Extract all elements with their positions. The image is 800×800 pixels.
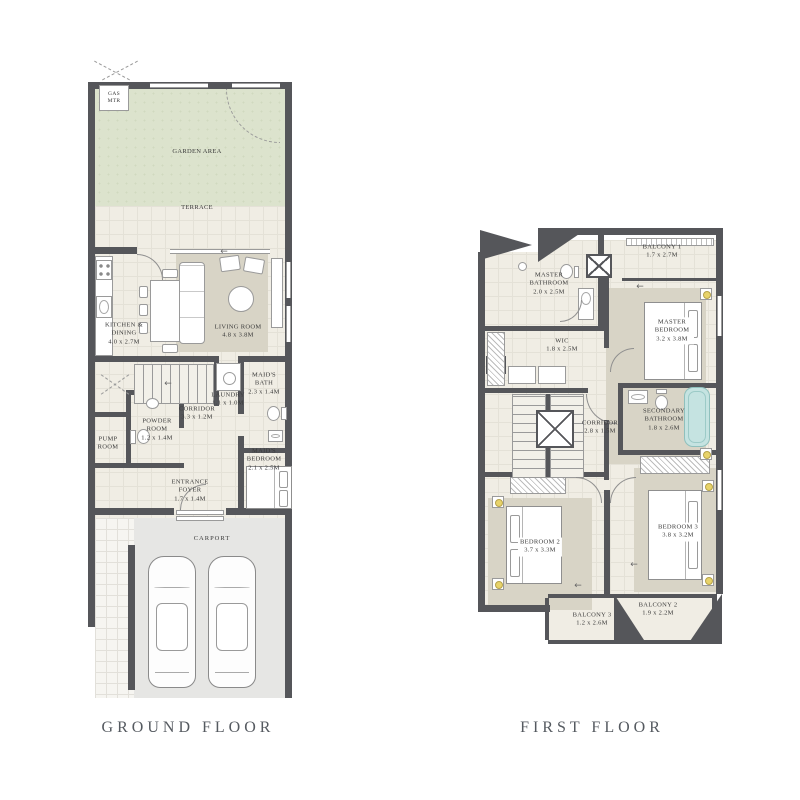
front-gate-swing-2 xyxy=(102,61,138,81)
powder-sink-icon xyxy=(146,398,159,409)
bedroom2-wardrobe xyxy=(510,477,566,494)
wall-wic-bottom xyxy=(484,388,588,393)
wic-shelf xyxy=(508,366,536,384)
room-dims: 1.9 x 2.2M xyxy=(639,610,678,618)
room-name: PUMP ROOM xyxy=(95,436,121,453)
stair-direction-arrow-icon: ← xyxy=(164,379,172,389)
kitchen-sink-icon xyxy=(96,296,112,318)
ground-floor-title: GROUND FLOOR xyxy=(102,719,275,737)
room-dims: 1.2 x 1.4M xyxy=(139,434,175,442)
wall-left xyxy=(88,82,95,627)
stove-icon xyxy=(96,260,112,280)
room-name: LIVING ROOM xyxy=(215,324,262,332)
room-label-kitchen: KITCHEN & DINING 4.0 x 2.7M xyxy=(103,321,145,346)
room-name: KITCHEN & DINING xyxy=(103,321,145,338)
room-label-secondary-bath: SECONDARY BATHROOM 1.8 x 2.6M xyxy=(639,407,689,432)
media-unit xyxy=(271,258,283,328)
balcony2-arrow-icon: ← xyxy=(630,560,638,570)
room-name: SECONDARY BATHROOM xyxy=(639,407,689,424)
nightstand-lamp-icon xyxy=(700,448,712,460)
room-dims: 3.2 x 3.8M xyxy=(652,335,692,343)
room-dims: 3.8 x 3.2M xyxy=(658,532,698,540)
right-window xyxy=(286,262,291,298)
car xyxy=(208,556,256,688)
stairs-ground xyxy=(134,364,214,404)
room-dims: 4.0 x 2.7M xyxy=(103,338,145,346)
room-dims: 2.8 x 1.5M xyxy=(582,428,618,436)
wall-right-first xyxy=(716,228,723,594)
room-dims: 2.3 x 1.4M xyxy=(244,388,284,396)
top-window-2 xyxy=(232,83,280,88)
nightstand-lamp-icon xyxy=(492,496,504,508)
room-name: CORRIDOR xyxy=(179,406,215,414)
stair-void-box xyxy=(536,410,574,448)
room-label-laundry: LAUNDRY 1.1 x 1.0M xyxy=(211,392,245,409)
room-name: TERRACE xyxy=(181,204,213,212)
nightstand-lamp-icon xyxy=(702,574,714,586)
room-dims: 1.1 x 1.0M xyxy=(211,400,245,408)
wall-right xyxy=(285,82,292,698)
first-floor-title: FIRST FLOOR xyxy=(520,719,664,737)
balcony3-arrow-icon: ← xyxy=(574,581,582,591)
room-label-foyer: ENTRANCE FOYER 1.7 x 1.4M xyxy=(169,478,211,503)
armchair xyxy=(219,255,241,273)
floorplan-canvas: ← ← xyxy=(0,0,800,800)
room-dims: 2.0 x 2.5M xyxy=(526,288,572,296)
room-label-maids-bath: MAID'S BATH 2.3 x 1.4M xyxy=(244,371,284,396)
room-name: CORRIDOR xyxy=(582,420,618,428)
room-name: GAS MTR xyxy=(102,91,126,105)
front-gate-swing xyxy=(94,61,130,81)
bed3-window xyxy=(717,470,722,510)
room-label-master-bath: MASTER BATHROOM 2.0 x 2.5M xyxy=(526,271,572,296)
wall-mbed-left-upper xyxy=(604,278,609,348)
room-name: POWDER ROOM xyxy=(139,417,175,434)
room-dims: 2.1 x 2.5M xyxy=(240,464,288,472)
wall-carport-left xyxy=(128,545,135,690)
room-label-bedroom2: BEDROOM 2 3.7 x 3.3M xyxy=(518,538,562,557)
shaft-box xyxy=(586,254,612,278)
room-label-wic: WIC 1.8 x 2.5M xyxy=(546,338,578,355)
room-name: LAUNDRY xyxy=(211,392,245,400)
wall-bottom-left-first xyxy=(478,605,550,612)
room-dims: 1.8 x 2.6M xyxy=(639,424,689,432)
wall-pump-top xyxy=(95,412,128,417)
wall-balcony3-left xyxy=(545,598,549,640)
wall-secbath-left xyxy=(618,383,623,455)
balcony1-edge xyxy=(622,278,716,281)
room-name: WIC xyxy=(546,338,578,346)
room-label-master-bedroom: MASTER BEDROOM 3.2 x 3.8M xyxy=(650,317,694,344)
wall-terrace xyxy=(95,247,137,254)
dining-chair xyxy=(162,344,178,353)
wic-shelf-2 xyxy=(538,366,566,384)
room-label-corridor-ground: CORRIDOR 3.3 x 1.2M xyxy=(179,406,215,423)
wall-balcony-top-edge xyxy=(548,594,716,598)
nightstand-lamp-icon xyxy=(700,288,712,300)
dining-chair xyxy=(139,304,148,316)
nightstand-lamp-icon xyxy=(492,578,504,590)
room-label-garden: GARDEN AREA xyxy=(172,148,221,156)
wall-left-first xyxy=(478,252,485,612)
coffee-table xyxy=(228,286,254,312)
room-name: BEDROOM 2 xyxy=(520,539,560,547)
room-name: BALCONY 2 xyxy=(639,602,678,610)
wall-bed2-bed3-divider xyxy=(604,490,610,594)
room-name: CARPORT xyxy=(194,535,231,543)
room-label-terrace: TERRACE xyxy=(181,204,213,212)
room-dims: 3.7 x 3.3M xyxy=(520,547,560,555)
wall-mbath-bottom xyxy=(484,326,604,331)
terrace-arrow-icon: ← xyxy=(220,247,228,257)
room-label-balcony3: BALCONY 3 1.2 x 2.6M xyxy=(573,612,612,629)
wic-closet xyxy=(487,332,505,386)
room-dims: 1.7 x 2.7M xyxy=(643,252,682,260)
armchair xyxy=(243,256,265,274)
mbed-window xyxy=(717,296,722,336)
room-label-pump: PUMP ROOM xyxy=(95,436,121,453)
dining-chair xyxy=(139,286,148,298)
dining-chair xyxy=(162,269,178,278)
room-dims: 1.2 x 2.6M xyxy=(573,620,612,628)
room-label-living: LIVING ROOM 4.8 x 3.8M xyxy=(215,324,262,341)
room-label-powder: POWDER ROOM 1.2 x 1.4M xyxy=(139,417,175,442)
room-dims: 1.7 x 1.4M xyxy=(169,495,211,503)
room-label-bedroom3: BEDROOM 3 3.8 x 3.2M xyxy=(656,523,700,542)
maidsbath-sink-icon xyxy=(268,430,283,442)
room-label-corridor-first: CORRIDOR 2.8 x 1.5M xyxy=(582,420,618,437)
entry-step-2 xyxy=(176,516,224,521)
room-name: BALCONY 1 xyxy=(643,244,682,252)
wall-powder-bottom xyxy=(95,463,184,468)
room-dims: 4.8 x 3.8M xyxy=(215,332,262,340)
sofa xyxy=(179,262,205,344)
wall-maidsbath-top xyxy=(240,356,292,362)
room-label-balcony1: BALCONY 1 1.7 x 2.7M xyxy=(643,244,682,261)
top-window xyxy=(150,83,208,88)
wall-kitchen-bottom xyxy=(95,356,217,362)
room-label-balcony2: BALCONY 2 1.9 x 2.2M xyxy=(639,602,678,619)
room-dims: 1.8 x 2.5M xyxy=(546,346,578,354)
room-name: MASTER BATHROOM xyxy=(526,271,572,288)
balcony1-arrow-icon: ← xyxy=(636,282,644,292)
entry-step xyxy=(176,510,224,515)
room-name: GARDEN AREA xyxy=(172,148,221,156)
shower-drain-icon xyxy=(518,262,527,271)
room-label-gas-meter: GAS MTR xyxy=(102,91,126,105)
room-name: MAID'S BEDROOM xyxy=(240,447,288,464)
room-name: MASTER BEDROOM xyxy=(652,318,692,335)
room-name: MAID'S BATH xyxy=(244,371,284,388)
room-dims: 3.3 x 1.2M xyxy=(179,414,215,422)
room-label-carport: CARPORT xyxy=(194,535,231,543)
room-label-maids-bedroom: MAID'S BEDROOM 2.1 x 2.5M xyxy=(240,447,288,472)
secbath-sink-icon xyxy=(628,390,648,404)
room-name: ENTRANCE FOYER xyxy=(169,478,211,495)
car xyxy=(148,556,196,688)
right-window-2 xyxy=(286,306,291,342)
wall-bottom-left xyxy=(88,508,174,515)
room-name: BEDROOM 3 xyxy=(658,524,698,532)
nightstand-lamp-icon xyxy=(702,480,714,492)
washing-machine-icon xyxy=(216,363,241,391)
room-name: BALCONY 3 xyxy=(573,612,612,620)
wall-powder-left xyxy=(126,390,131,468)
wall-bottom-right xyxy=(226,508,292,515)
